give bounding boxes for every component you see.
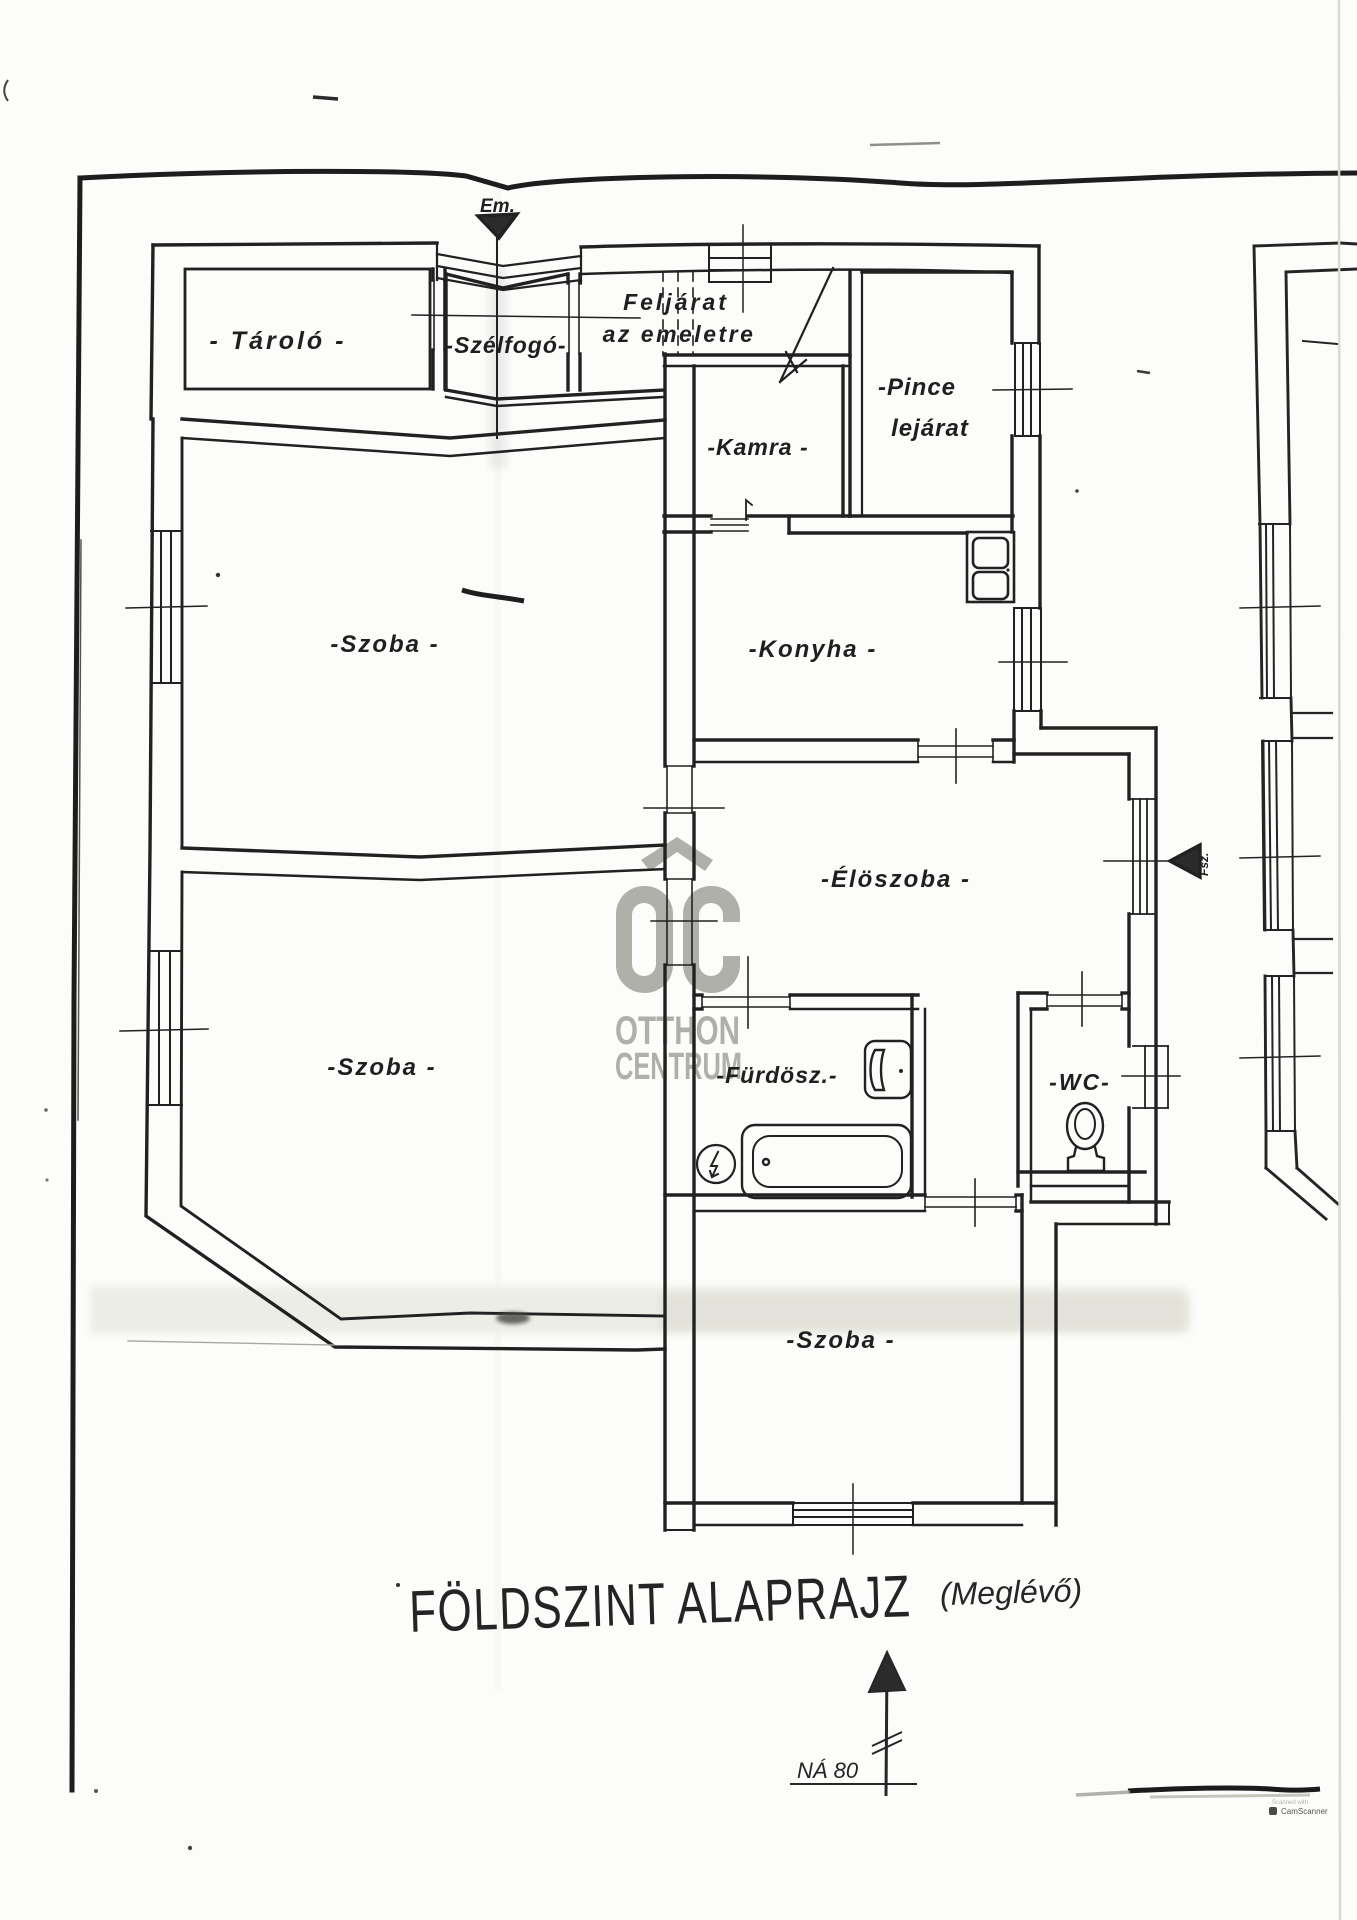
- svg-text:-Kamra -: -Kamra -: [707, 434, 808, 460]
- svg-text:-Pince: -Pince: [878, 374, 956, 401]
- svg-text:- Tároló -: - Tároló -: [210, 327, 347, 355]
- svg-text:Feljárat: Feljárat: [623, 289, 729, 315]
- svg-text:(Meglévő): (Meglévő): [939, 1572, 1082, 1612]
- svg-text:NÁ 80: NÁ 80: [797, 1758, 859, 1783]
- svg-text:-Szoba -: -Szoba -: [330, 631, 439, 658]
- svg-text:-Fürdösz.-: -Fürdösz.-: [716, 1062, 837, 1088]
- svg-text:az emeletre: az emeletre: [603, 321, 756, 347]
- svg-text:CamScanner: CamScanner: [1281, 1807, 1328, 1816]
- svg-text:-Szélfogó-: -Szélfogó-: [445, 332, 566, 358]
- svg-text:lejárat: lejárat: [891, 415, 969, 442]
- svg-text:-WC-: -WC-: [1049, 1069, 1111, 1095]
- svg-text:-Élöszoba -: -Élöszoba -: [821, 865, 971, 893]
- svg-text:Em.: Em.: [480, 196, 515, 217]
- svg-text:-Szoba -: -Szoba -: [327, 1054, 436, 1081]
- svg-text:-Szoba -: -Szoba -: [786, 1327, 895, 1354]
- svg-text:Fsz.: Fsz.: [1197, 853, 1211, 876]
- svg-text:-Konyha -: -Konyha -: [749, 636, 878, 663]
- svg-text:Scanned with: Scanned with: [1272, 1800, 1308, 1806]
